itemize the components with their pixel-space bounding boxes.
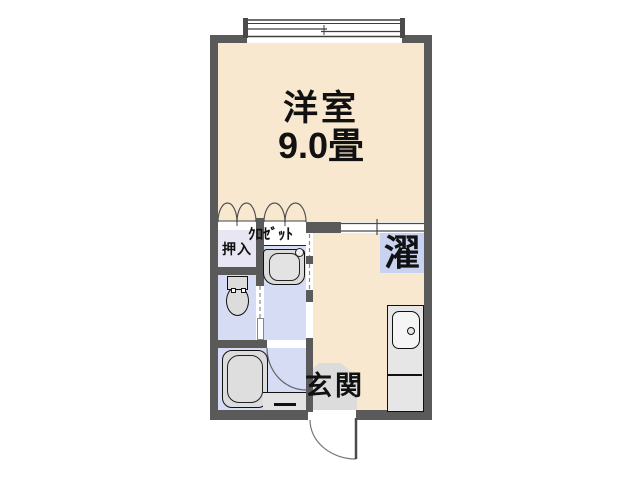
kitchen-faucet (407, 327, 415, 335)
entrance-label: 玄関 (303, 373, 367, 400)
entrance-door (310, 418, 356, 459)
closet-door-arcs (218, 203, 306, 226)
kitchen-sink-fixture (392, 311, 420, 349)
closet-label: ｸﾛｾﾞｯﾄ (248, 227, 293, 242)
bathtub-inner (227, 355, 263, 403)
kitchen-counter-divider (388, 374, 422, 376)
toilet-hinge-left (231, 288, 236, 293)
entrance-door-arc (310, 420, 356, 459)
bath-door-arc (267, 348, 306, 390)
bath-shelf-line (274, 403, 296, 406)
bath-shelf (263, 392, 306, 410)
western-room-size-label: 9.0畳 (218, 128, 424, 164)
floorplan-canvas: 洋室 9.0畳 押入 ｸﾛｾﾞｯﾄ 濯 玄関 (0, 0, 640, 480)
washbasin-faucet (295, 248, 304, 257)
plan-linework (0, 0, 640, 480)
western-room-label: 洋室 (218, 91, 424, 126)
laundry-label: 濯 (380, 235, 424, 271)
washbasin-bowl (269, 253, 300, 281)
window (243, 18, 405, 38)
oshiire-label: 押入 (218, 242, 256, 256)
toilet-hinge-right (241, 288, 246, 293)
kitchen-counter (387, 305, 424, 412)
